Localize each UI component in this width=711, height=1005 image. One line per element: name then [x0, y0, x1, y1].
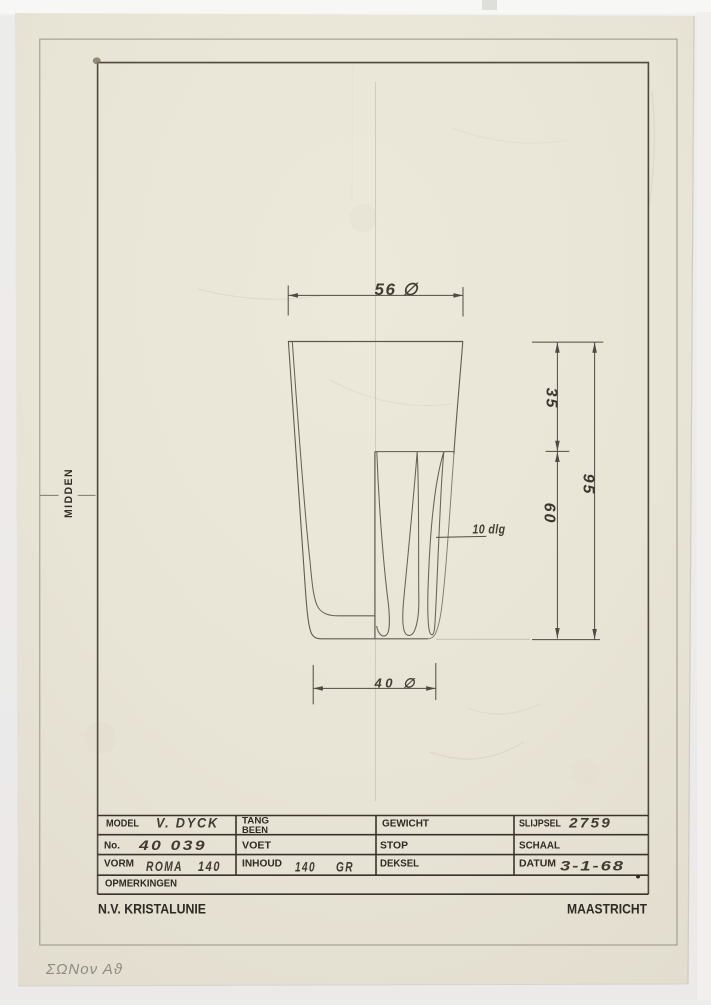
svg-text:60: 60	[541, 503, 558, 525]
svg-text:DATUM: DATUM	[519, 858, 556, 870]
svg-text:N.V. KRISTALUNIE: N.V. KRISTALUNIE	[98, 901, 206, 917]
svg-text:40 039: 40 039	[138, 837, 207, 853]
svg-text:40 ∅: 40 ∅	[374, 676, 418, 691]
svg-text:ROMA: ROMA	[146, 858, 183, 874]
svg-text:MIDDEN: MIDDEN	[63, 468, 75, 518]
svg-text:No.: No.	[104, 839, 120, 851]
svg-text:INHOUD: INHOUD	[242, 858, 282, 870]
svg-text:56 ∅: 56 ∅	[375, 280, 420, 299]
svg-text:35: 35	[543, 388, 560, 410]
svg-text:140: 140	[198, 858, 221, 874]
svg-text:MAASTRICHT: MAASTRICHT	[567, 901, 647, 917]
svg-text:ΣΩΝον Αϑ: ΣΩΝον Αϑ	[45, 961, 123, 978]
svg-text:10 dlg: 10 dlg	[473, 522, 506, 537]
svg-text:STOP: STOP	[380, 839, 408, 851]
svg-text:VOET: VOET	[242, 839, 272, 851]
svg-text:BEEN: BEEN	[242, 825, 268, 836]
svg-text:140: 140	[295, 859, 316, 875]
svg-text:MODEL: MODEL	[106, 818, 140, 830]
svg-text:95: 95	[580, 474, 597, 496]
svg-text:SLIJPSEL: SLIJPSEL	[519, 818, 561, 830]
svg-text:GEWICHT: GEWICHT	[382, 818, 430, 830]
svg-text:3-1-68: 3-1-68	[560, 858, 625, 874]
svg-text:V. DYCK: V. DYCK	[156, 815, 219, 831]
svg-text:SCHAAL: SCHAAL	[519, 839, 561, 851]
svg-text:OPMERKINGEN: OPMERKINGEN	[105, 877, 177, 889]
svg-text:VORM: VORM	[104, 858, 134, 870]
svg-text:GR: GR	[336, 859, 354, 875]
svg-text:DEKSEL: DEKSEL	[380, 858, 420, 870]
svg-text:2759: 2759	[568, 815, 612, 831]
